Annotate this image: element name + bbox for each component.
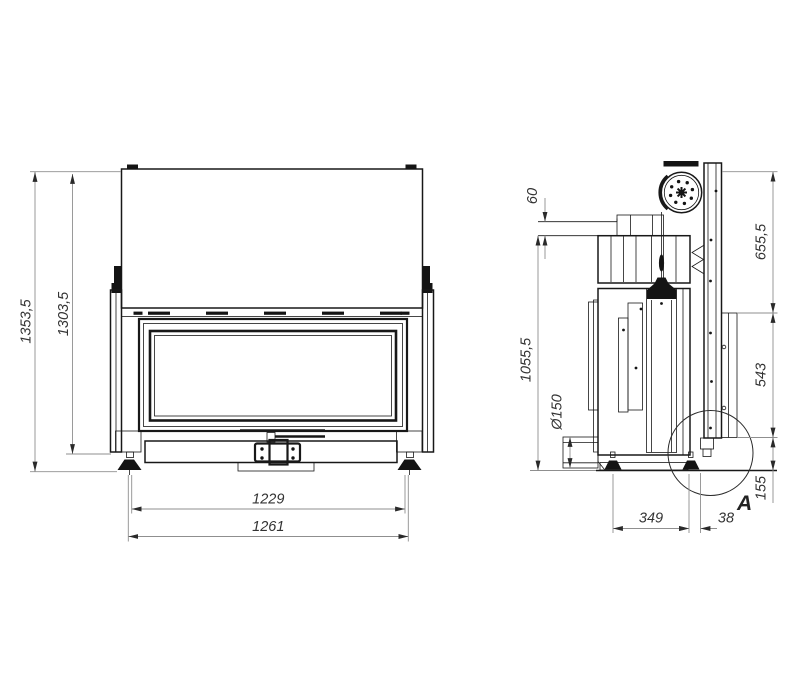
dim-label-bottom-section: 155 <box>754 475 770 500</box>
door-latch <box>240 431 325 465</box>
detail-circle-a <box>668 411 753 496</box>
dim-label-foot-spacing: 349 <box>639 511 663 527</box>
dim-left-height: 1055,5 <box>519 236 597 471</box>
detail-label-a: A <box>736 492 752 515</box>
dim-frame-height: 1303,5 <box>56 174 111 454</box>
dim-label-rail-offset: 38 <box>718 511 734 527</box>
hood-tab-left <box>127 165 138 170</box>
door-guide-rail <box>701 163 722 457</box>
hinge-bracket-left <box>112 266 122 293</box>
dim-label-flue-diameter: Ø150 <box>550 394 566 430</box>
base-box-right <box>397 431 423 452</box>
dim-label-top-offset: 60 <box>525 188 541 204</box>
pulley-mount-cap <box>664 161 699 167</box>
side-foot-rear <box>683 461 700 470</box>
dim-flue-diameter: Ø150 <box>550 394 571 468</box>
dim-overall-width: 1261 <box>128 475 408 542</box>
dim-label-overall-width: 1261 <box>252 519 284 535</box>
dim-label-frame-height: 1303,5 <box>56 291 72 336</box>
front-view: 1353,5 1303,5 1229 1261 <box>19 165 434 542</box>
base-box-left <box>116 431 142 452</box>
air-intake-stub <box>563 437 598 468</box>
glass-pane <box>155 336 392 417</box>
hood-panel <box>122 169 423 308</box>
hood-tab-right <box>406 165 417 170</box>
frame-column-right <box>423 290 434 452</box>
glass-door <box>139 319 407 431</box>
dim-glass-width: 1229 <box>132 475 405 514</box>
glass-frame <box>150 331 396 421</box>
dim-label-upper-section: 655,5 <box>754 223 770 260</box>
side-view: A 60 1055,5 Ø150 655,5 543 <box>519 161 778 533</box>
dim-label-mid-section: 543 <box>754 363 770 387</box>
rail-rear-panel <box>722 313 738 438</box>
door-top-band <box>122 308 423 317</box>
counterweight-pulley <box>660 172 702 212</box>
counterweight-channel <box>647 289 677 453</box>
smoke-dome <box>598 236 690 289</box>
drawing-svg: 1353,5 1303,5 1229 1261 <box>0 0 800 700</box>
adjustable-foot-left <box>118 452 142 475</box>
dim-right-chain: 655,5 543 155 <box>722 172 778 503</box>
firebox-body <box>589 190 718 455</box>
dim-rail-offset: 38 <box>677 511 734 529</box>
dim-top-offset: 60 <box>525 188 545 259</box>
door-inner-frame <box>144 324 403 427</box>
hinge-bracket-right <box>423 266 433 293</box>
dim-label-glass-width: 1229 <box>252 492 284 508</box>
dim-foot-spacing: 349 <box>613 473 701 533</box>
dim-label-left-height: 1055,5 <box>519 337 535 382</box>
flue-collar <box>538 215 664 236</box>
adjustable-foot-right <box>398 452 422 475</box>
side-foot-front <box>605 461 622 470</box>
dim-label-total-height: 1353,5 <box>19 298 35 343</box>
frame-column-left <box>111 290 122 452</box>
spring-zigzag <box>692 246 704 274</box>
technical-drawing-page: 1353,5 1303,5 1229 1261 <box>0 0 800 700</box>
